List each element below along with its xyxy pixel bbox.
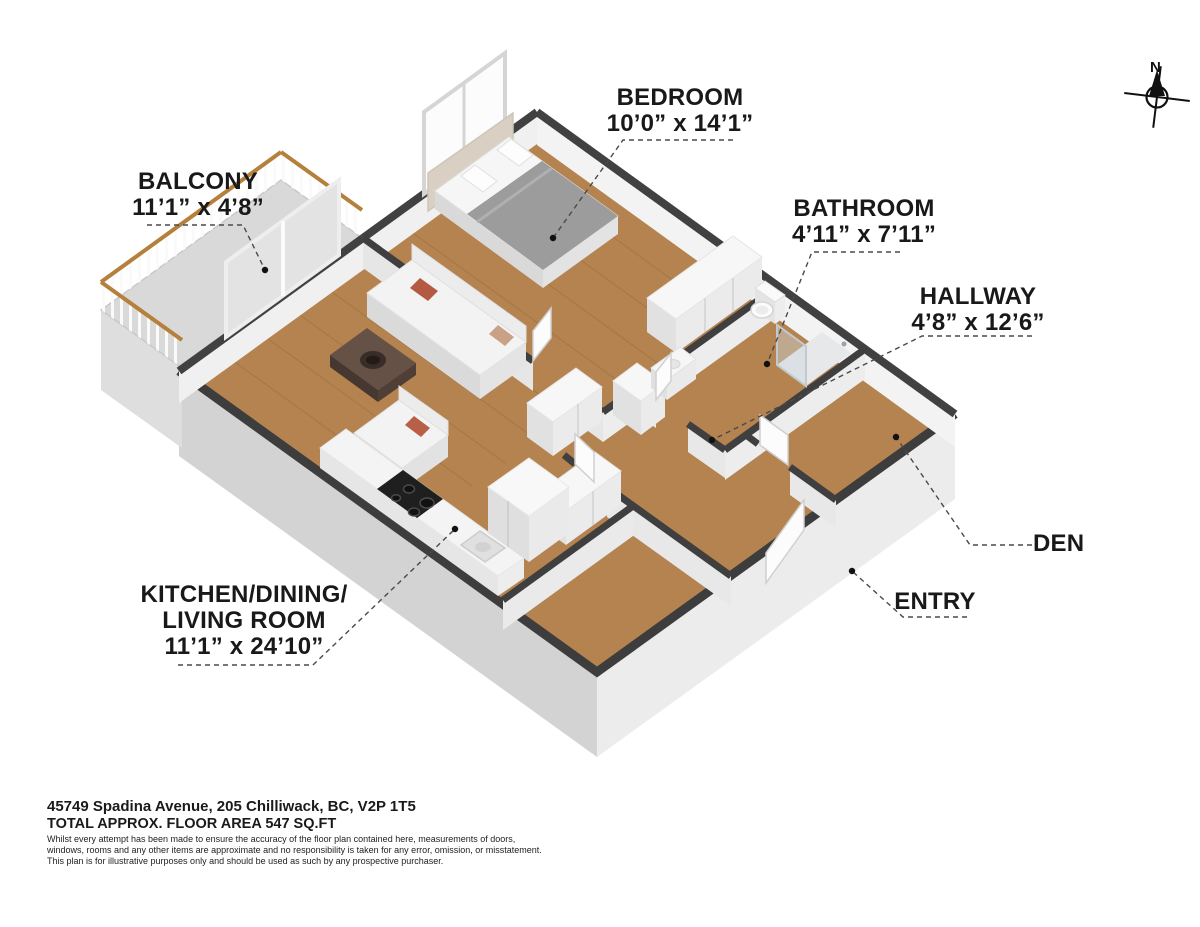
bedroom-name: BEDROOM	[558, 85, 802, 111]
balcony-dot	[262, 267, 268, 273]
hallway-name: HALLWAY	[856, 284, 1100, 310]
entry-dot	[849, 568, 855, 574]
hallway-dot	[709, 437, 715, 443]
disclaimer-line2: windows, rooms and any other items are a…	[47, 845, 542, 856]
disclaimer-line3: This plan is for illustrative purposes o…	[47, 856, 542, 867]
balcony-label: BALCONY 11’1” x 4’8”	[78, 169, 318, 221]
sink-basin	[475, 542, 491, 552]
bathroom-label: BATHROOM 4’11” x 7’11”	[742, 196, 986, 248]
bathroom-name: BATHROOM	[742, 196, 986, 222]
bedroom-dot	[550, 235, 556, 241]
balcony-dims: 11’1” x 4’8”	[78, 195, 318, 221]
table-bowl-inner	[366, 356, 380, 365]
compass-icon: N	[1120, 59, 1193, 132]
kitchen-name-line2: LIVING ROOM	[108, 608, 380, 634]
entry-name: ENTRY	[868, 589, 1002, 615]
disclaimer-line1: Whilst every attempt has been made to en…	[47, 834, 542, 845]
bedroom-label: BEDROOM 10’0” x 14’1”	[558, 85, 802, 137]
floor-plan-page: N BEDROOM 10’0” x 14’1” BALCONY 11’1” x …	[0, 0, 1200, 927]
property-address: 45749 Spadina Avenue, 205 Chilliwack, BC…	[47, 798, 416, 815]
balcony-name: BALCONY	[78, 169, 318, 195]
kitchen-name-line1: KITCHEN/DINING/	[108, 582, 380, 608]
total-floor-area: TOTAL APPROX. FLOOR AREA 547 SQ.FT	[47, 816, 336, 832]
compass-north-label: N	[1150, 59, 1161, 76]
entry-label: ENTRY	[868, 589, 1002, 615]
den-label: DEN	[1033, 531, 1143, 557]
floor-plan-3d-render: N	[0, 0, 1200, 927]
kitchen-label: KITCHEN/DINING/ LIVING ROOM 11’1” x 24’1…	[108, 582, 380, 660]
hallway-label: HALLWAY 4’8” x 12’6”	[856, 284, 1100, 336]
kitchen-dims: 11’1” x 24’10”	[108, 634, 380, 660]
disclaimer: Whilst every attempt has been made to en…	[47, 834, 542, 867]
kitchen-dot	[452, 526, 458, 532]
toilet-seat	[756, 306, 769, 315]
bedroom-dims: 10’0” x 14’1”	[558, 111, 802, 137]
hallway-dims: 4’8” x 12’6”	[856, 310, 1100, 336]
bathroom-dims: 4’11” x 7’11”	[742, 222, 986, 248]
bathroom-dot	[764, 361, 770, 367]
den-dot	[893, 434, 899, 440]
den-name: DEN	[1033, 531, 1143, 557]
shower-head	[842, 342, 847, 347]
